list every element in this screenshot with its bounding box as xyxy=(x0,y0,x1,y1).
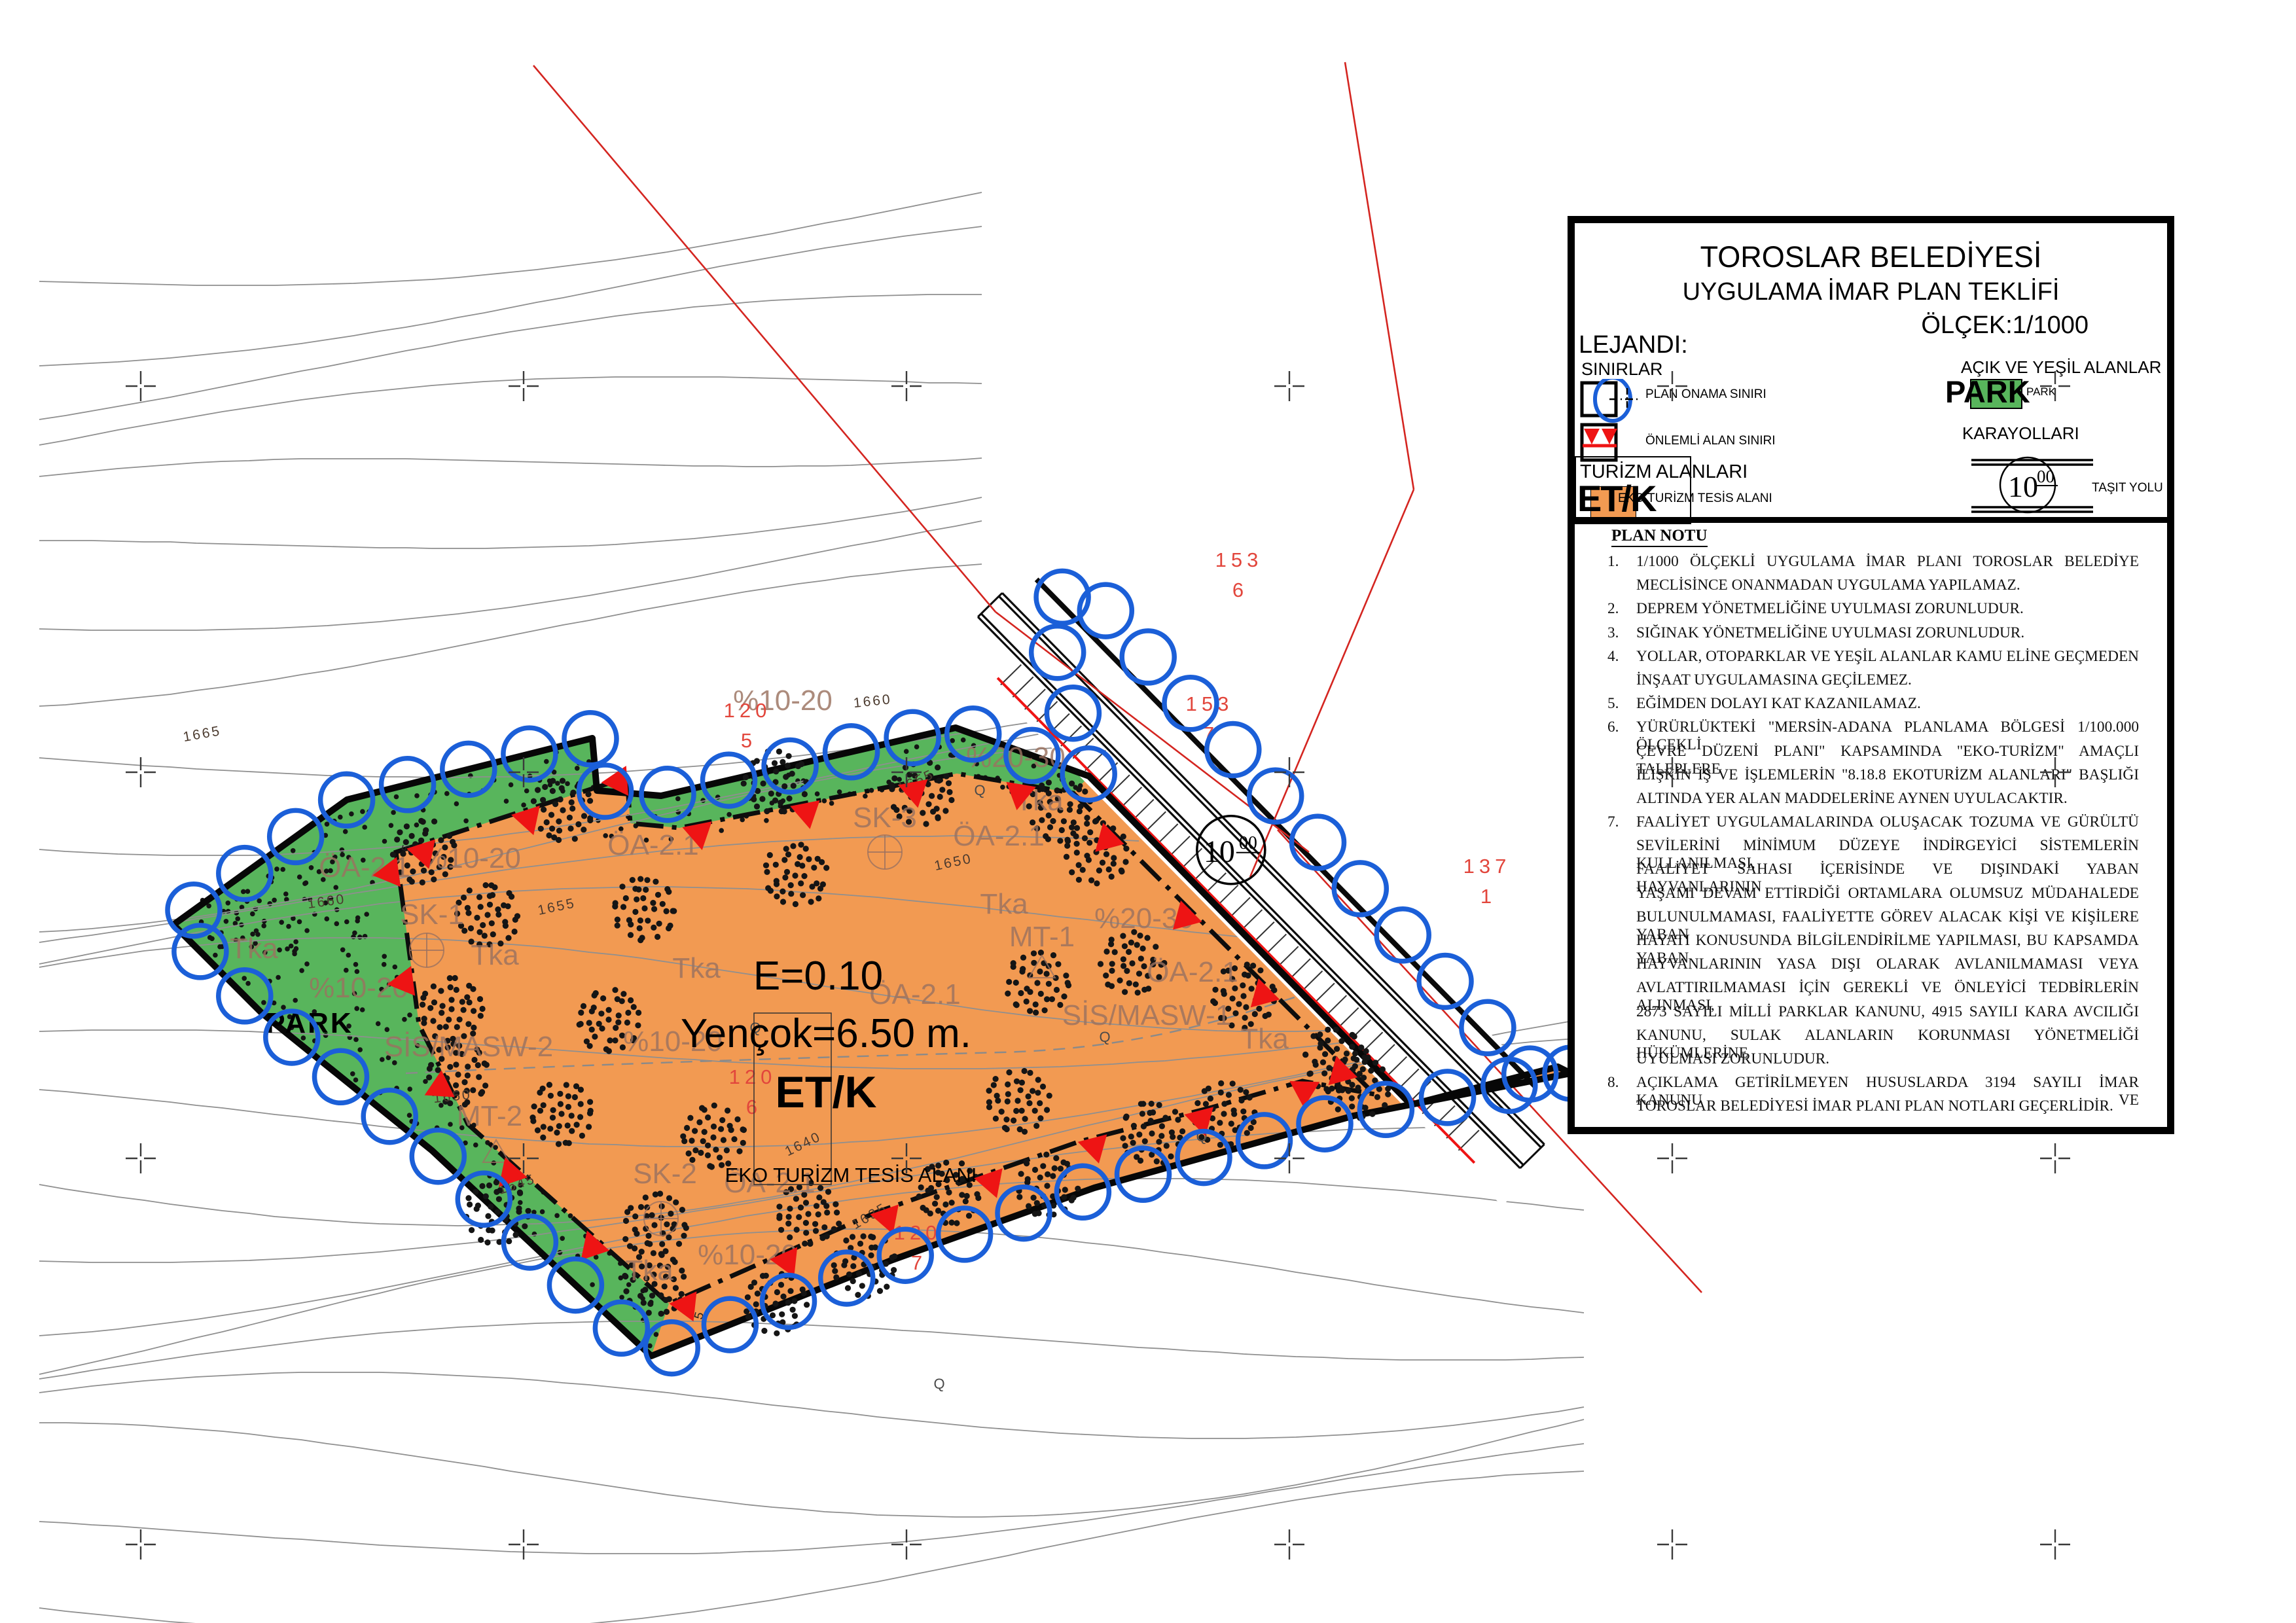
svg-text:00: 00 xyxy=(1239,833,1257,853)
plan-note-line: 7.FAALİYET UYGULAMALARINDA OLUŞACAK TOZU… xyxy=(1607,813,2139,837)
svg-text:153: 153 xyxy=(1186,692,1234,715)
zone-label: ÖA-2.1 xyxy=(953,820,1044,852)
plan-notes-heading: PLAN NOTU xyxy=(1611,527,1708,547)
plan-approval-boundary-icon xyxy=(1580,379,1665,425)
svg-text:120: 120 xyxy=(729,1065,777,1088)
zone-label: MT-1 xyxy=(1009,921,1075,953)
plan-note-line: 4.YOLLAR, OTOPARKLAR VE YEŞİL ALANLAR KA… xyxy=(1607,648,2139,671)
zone-label: SK-3 xyxy=(853,802,917,834)
tourism-areas-box: TURİZM ALANLARI ET/K EKO TURİZM TESİS AL… xyxy=(1575,456,1691,524)
plan-note-line: HAYVANLARININ YASA DIŞI OLARAK AVLANILMA… xyxy=(1607,955,2139,979)
plan-note-line: KANUNU, SULAK ALANLARIN KORUNMASI YÖNETM… xyxy=(1607,1027,2139,1050)
svg-text:5: 5 xyxy=(741,729,757,752)
svg-text:Q: Q xyxy=(933,1376,944,1392)
plan-sheet: ÖA-2.1%10-20SK-1Tka%10-20TkaSİS/MASW-2MT… xyxy=(0,0,2296,1623)
plan-note-line: SEVİLERİNİ MİNİMUM DÜZEYE İNDİRGEYİCİ Sİ… xyxy=(1607,837,2139,861)
plan-note-line: FAALİYET SAHASI İÇERİSİNDE VE DIŞINDAKİ … xyxy=(1607,861,2139,884)
zone-label: %10-20 xyxy=(309,972,408,1004)
svg-text:10: 10 xyxy=(1204,834,1235,869)
contour-elevation-label: 1665 xyxy=(182,723,223,745)
svg-text:ET/K: ET/K xyxy=(776,1067,877,1117)
svg-text:6: 6 xyxy=(1232,579,1248,601)
road-symbol: 10 00 xyxy=(1967,452,2098,524)
svg-text:Q: Q xyxy=(1099,1029,1110,1045)
svg-text:Yençok=6.50 m.: Yençok=6.50 m. xyxy=(681,1011,971,1056)
parcel-label: 1536 xyxy=(1215,548,1263,601)
zone-label: Tka xyxy=(672,952,721,984)
svg-text:Q: Q xyxy=(974,782,985,798)
park-label: PARK xyxy=(2026,385,2056,399)
sk-symbol-icon xyxy=(868,835,902,869)
zone-label: %10-20 xyxy=(422,842,521,874)
plan-notes: 1.1/1000 ÖLÇEKLİ UYGULAMA İMAR PLANI TOR… xyxy=(1607,553,2139,1122)
zone-label: SİS/MASW-1 xyxy=(1062,999,1231,1031)
zone-label: ÖA-2.1 xyxy=(607,829,698,861)
contour-elevation-label: 1660 xyxy=(853,692,893,711)
municipality-title: TOROSLAR BELEDİYESİ xyxy=(1575,240,2167,274)
plan-title: UYGULAMA İMAR PLAN TEKLİFİ xyxy=(1575,278,2167,306)
zone-label: Tka xyxy=(1240,1023,1289,1055)
zone-label: ÖA-2.1 xyxy=(1147,956,1238,988)
plan-approval-boundary-label: PLAN ONAMA SINIRI xyxy=(1645,387,1767,402)
zone-label: SK-2 xyxy=(633,1158,697,1190)
sk-symbol-icon xyxy=(410,933,444,967)
legend-heading: LEJANDI: xyxy=(1579,331,1688,359)
road-width-decimals: 00 xyxy=(2037,467,2054,486)
plan-note-line: 3.SIĞINAK YÖNETMELİĞİNE UYULMASI ZORUNLU… xyxy=(1607,624,2139,648)
zone-label: Tka xyxy=(230,933,278,965)
q-mark: Q xyxy=(1099,1029,1110,1045)
plan-note-line: YAŞAMI DEVAM ETTİRDİĞİ ORTAMLARA OLUMSUZ… xyxy=(1607,885,2139,908)
sk-symbol-icon xyxy=(644,1202,678,1236)
parcel-label: 1371 xyxy=(1463,855,1511,908)
zone-label: Tka xyxy=(471,939,519,971)
plan-note-line: 5.EĞİMDEN DOLAYI KAT KAZANILAMAZ. xyxy=(1607,695,2139,719)
q-mark: Q xyxy=(974,782,985,798)
plan-note-line: 8.AÇIKLAMA GETİRİLMEYEN HUSUSLARDA 3194 … xyxy=(1607,1074,2139,1097)
parcel-label: 1205 xyxy=(724,699,772,752)
plan-note-line: HAYATI KONUSUNDA BİLGİLENDİRİLME YAPILMA… xyxy=(1607,932,2139,955)
plan-note-line: AVLATTIRILMAMASI İÇİN GEREKLİ VE ÖNLEYİC… xyxy=(1607,979,2139,1003)
svg-text:153: 153 xyxy=(1215,548,1263,571)
vehicle-road-label: TAŞIT YOLU xyxy=(2092,481,2163,495)
zone-label: Tka xyxy=(625,1255,673,1287)
highways-heading: KARAYOLLARI xyxy=(1962,423,2079,444)
plan-note-line: TOROSLAR BELEDİYESİ İMAR PLANI PLAN NOTL… xyxy=(1607,1097,2139,1121)
plan-note-line: İNŞAAT UYGULAMASINA GEÇİLEMEZ. xyxy=(1607,671,2139,695)
precaution-area-boundary-label: ÖNLEMLİ ALAN SINIRI xyxy=(1645,434,1776,448)
eco-tourism-facility-label: EKO TURİZM TESİS ALANI xyxy=(1618,491,1772,506)
road-width-number: 10 xyxy=(2008,470,2038,503)
zone-label: ÖA-2.1 xyxy=(869,978,960,1010)
plan-note-line: UYULMASI ZORUNLUDUR. xyxy=(1607,1050,2139,1074)
svg-text:EKO TURİZM TESİS ALANI: EKO TURİZM TESİS ALANI xyxy=(725,1164,977,1186)
legend-borders-heading: SINIRLAR xyxy=(1581,359,1663,380)
plan-note-line: BULUNULMAMASI, FAALİYETTE GÖREV ALACAK K… xyxy=(1607,908,2139,932)
zone-label: SİS/MASW-2 xyxy=(384,1031,553,1063)
q-mark: Q xyxy=(933,1376,944,1392)
plan-note-line: İLİŞKİN İŞ VE İŞLEMLERİN "8.18.8 EKOTURİ… xyxy=(1607,766,2139,790)
svg-text:120: 120 xyxy=(724,699,772,722)
plan-note-line: 2873 SAYILI MİLLİ PARKLAR KANUNU, 4915 S… xyxy=(1607,1003,2139,1027)
zone-label: MT-2 xyxy=(457,1100,522,1132)
panel-divider xyxy=(1575,517,2167,523)
title-block-panel: TOROSLAR BELEDİYESİ UYGULAMA İMAR PLAN T… xyxy=(1568,216,2174,1134)
zone-label: SK-1 xyxy=(400,899,464,931)
zone-label: Tka xyxy=(980,888,1028,920)
park-zone-code: PARK xyxy=(1945,374,2030,410)
svg-text:1: 1 xyxy=(1480,885,1496,908)
plan-note-line: 2.DEPREM YÖNETMELİĞİNE UYULMASI ZORUNLUD… xyxy=(1607,600,2139,624)
plan-note-line: ÇEVRE DÜZENİ PLANI" KAPSAMINDA "EKO-TURİ… xyxy=(1607,743,2139,766)
plan-note-line: 1.1/1000 ÖLÇEKLİ UYGULAMA İMAR PLANI TOR… xyxy=(1607,553,2139,577)
svg-text:E=0.10: E=0.10 xyxy=(753,954,883,999)
svg-text:137: 137 xyxy=(1463,855,1511,878)
plan-note-line: ALTINDA YER ALAN MADDELERİNE AYNEN UYULA… xyxy=(1607,790,2139,813)
plan-note-line: 6.YÜRÜRLÜKTEKİ "MERSİN-ADANA PLANLAMA BÖ… xyxy=(1607,719,2139,742)
plan-note-line: MECLİSİNCE ONANMADAN UYGULAMA YAPILAMAZ. xyxy=(1607,577,2139,600)
